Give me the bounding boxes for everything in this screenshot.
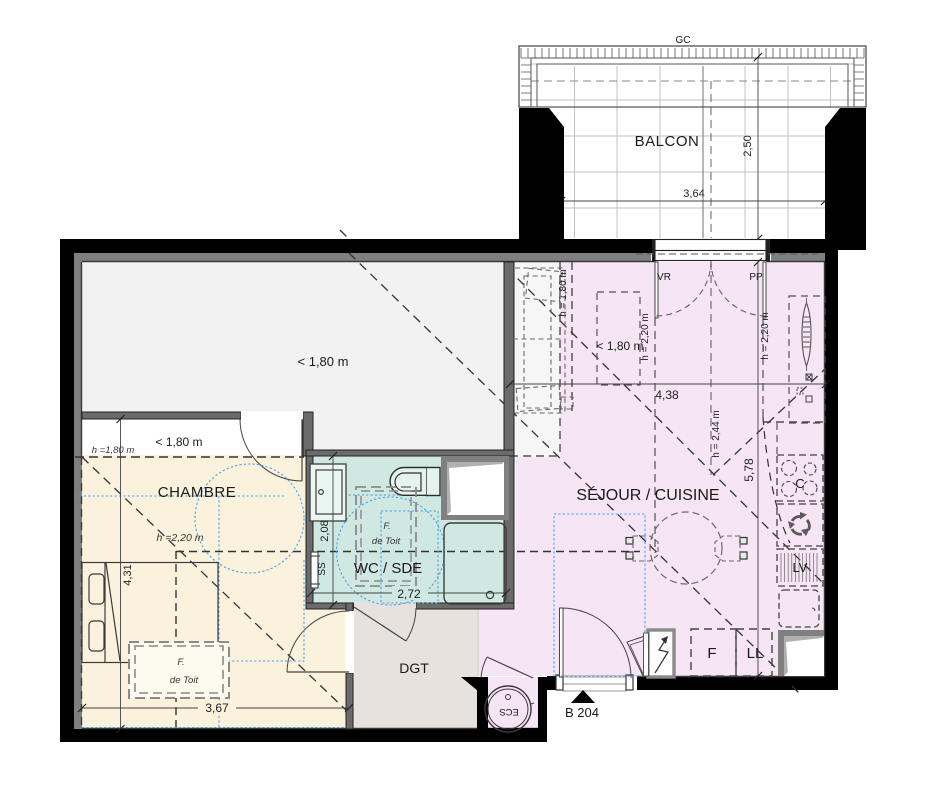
- svg-text:h =1,80 m: h =1,80 m: [92, 445, 135, 456]
- svg-text:CHAMBRE: CHAMBRE: [158, 484, 237, 501]
- svg-text:h = 1,80 m: h = 1,80 m: [558, 269, 569, 317]
- svg-text:WC / SDE: WC / SDE: [354, 560, 422, 577]
- svg-text:de Toit: de Toit: [170, 675, 199, 686]
- svg-text:F.: F.: [177, 657, 184, 668]
- svg-text:F: F: [707, 645, 716, 662]
- svg-text:3,67: 3,67: [205, 701, 229, 715]
- svg-text:2,50: 2,50: [742, 135, 754, 156]
- svg-text:BALCON: BALCON: [635, 133, 700, 150]
- svg-text:LL: LL: [747, 645, 764, 662]
- svg-text:< 1,80 m: < 1,80 m: [596, 339, 643, 353]
- svg-text:B 204: B 204: [565, 705, 599, 720]
- svg-text:2,08: 2,08: [319, 520, 331, 541]
- svg-text:LV: LV: [793, 560, 808, 575]
- svg-text:DGT: DGT: [399, 660, 429, 676]
- svg-text:PP: PP: [749, 272, 763, 283]
- svg-text:h =2,20 m: h =2,20 m: [157, 532, 204, 544]
- svg-text:4,31: 4,31: [122, 564, 134, 585]
- svg-text:h = 2,20 m: h = 2,20 m: [640, 313, 651, 361]
- svg-text:ECS: ECS: [499, 706, 519, 717]
- svg-text:VR: VR: [657, 272, 671, 283]
- svg-text:C: C: [795, 476, 804, 491]
- svg-text:4,38: 4,38: [655, 388, 679, 402]
- svg-text:h = 2,44 m: h = 2,44 m: [711, 410, 722, 458]
- svg-text:< 1,80 m: < 1,80 m: [298, 354, 349, 369]
- svg-text:F.: F.: [383, 521, 390, 532]
- svg-text:< 1,80 m: < 1,80 m: [155, 435, 202, 449]
- svg-text:5,78: 5,78: [742, 458, 756, 482]
- svg-text:de Toit: de Toit: [372, 536, 401, 547]
- svg-text:GC: GC: [676, 35, 691, 46]
- svg-text:SS: SS: [317, 562, 328, 576]
- svg-text:3,64: 3,64: [683, 188, 704, 200]
- svg-text:2,72: 2,72: [397, 587, 421, 601]
- svg-text:h = 2,20 m: h = 2,20 m: [760, 312, 771, 360]
- svg-text:SÉJOUR / CUISINE: SÉJOUR / CUISINE: [576, 485, 719, 504]
